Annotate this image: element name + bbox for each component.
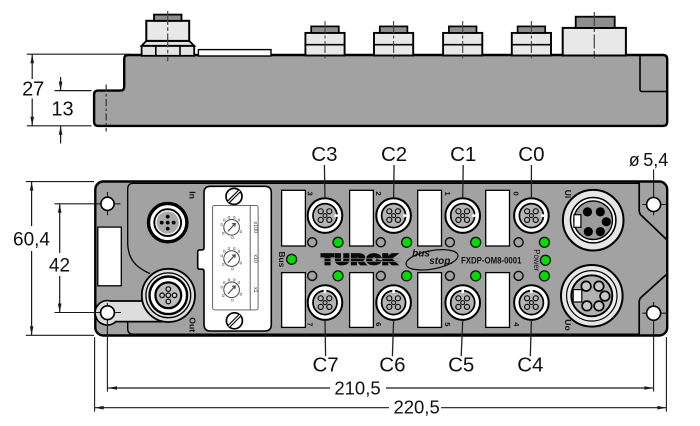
svg-text:220,5: 220,5 — [393, 396, 439, 417]
svg-text:x10: x10 — [252, 254, 258, 262]
svg-text:C2: C2 — [381, 143, 407, 166]
svg-text:ø 5,4: ø 5,4 — [629, 150, 669, 170]
svg-text:Uo: Uo — [563, 319, 573, 330]
svg-text:Power: Power — [532, 249, 541, 272]
svg-text:x1: x1 — [252, 287, 258, 293]
svg-text:FXDP-OM8-0001: FXDP-OM8-0001 — [461, 256, 522, 267]
svg-text:Ui: Ui — [563, 190, 573, 199]
svg-text:C0: C0 — [518, 143, 544, 166]
svg-text:210,5: 210,5 — [334, 377, 380, 398]
svg-text:60,4: 60,4 — [13, 230, 50, 251]
svg-text:bus: bus — [412, 249, 430, 260]
svg-text:In: In — [188, 191, 198, 199]
svg-text:Bus: Bus — [277, 251, 287, 267]
svg-text:C1: C1 — [450, 143, 476, 166]
svg-text:7: 7 — [305, 322, 314, 326]
svg-text:C7: C7 — [312, 354, 338, 377]
svg-text:27: 27 — [22, 79, 44, 101]
svg-text:13: 13 — [51, 98, 73, 120]
svg-text:C5: C5 — [448, 354, 474, 377]
svg-text:5: 5 — [443, 322, 452, 326]
svg-text:0: 0 — [512, 192, 521, 196]
svg-text:42: 42 — [49, 255, 70, 276]
svg-text:1: 1 — [443, 192, 452, 196]
svg-text:C3: C3 — [311, 143, 337, 166]
svg-text:2: 2 — [374, 192, 383, 196]
svg-text:3: 3 — [305, 192, 314, 196]
svg-text:stop.: stop. — [429, 256, 453, 267]
svg-text:C6: C6 — [379, 354, 405, 377]
svg-text:C4: C4 — [517, 354, 543, 377]
svg-text:Out: Out — [188, 317, 198, 332]
svg-text:6: 6 — [374, 322, 383, 326]
svg-text:x100: x100 — [252, 222, 258, 233]
svg-text:TURCK: TURCK — [322, 251, 399, 267]
